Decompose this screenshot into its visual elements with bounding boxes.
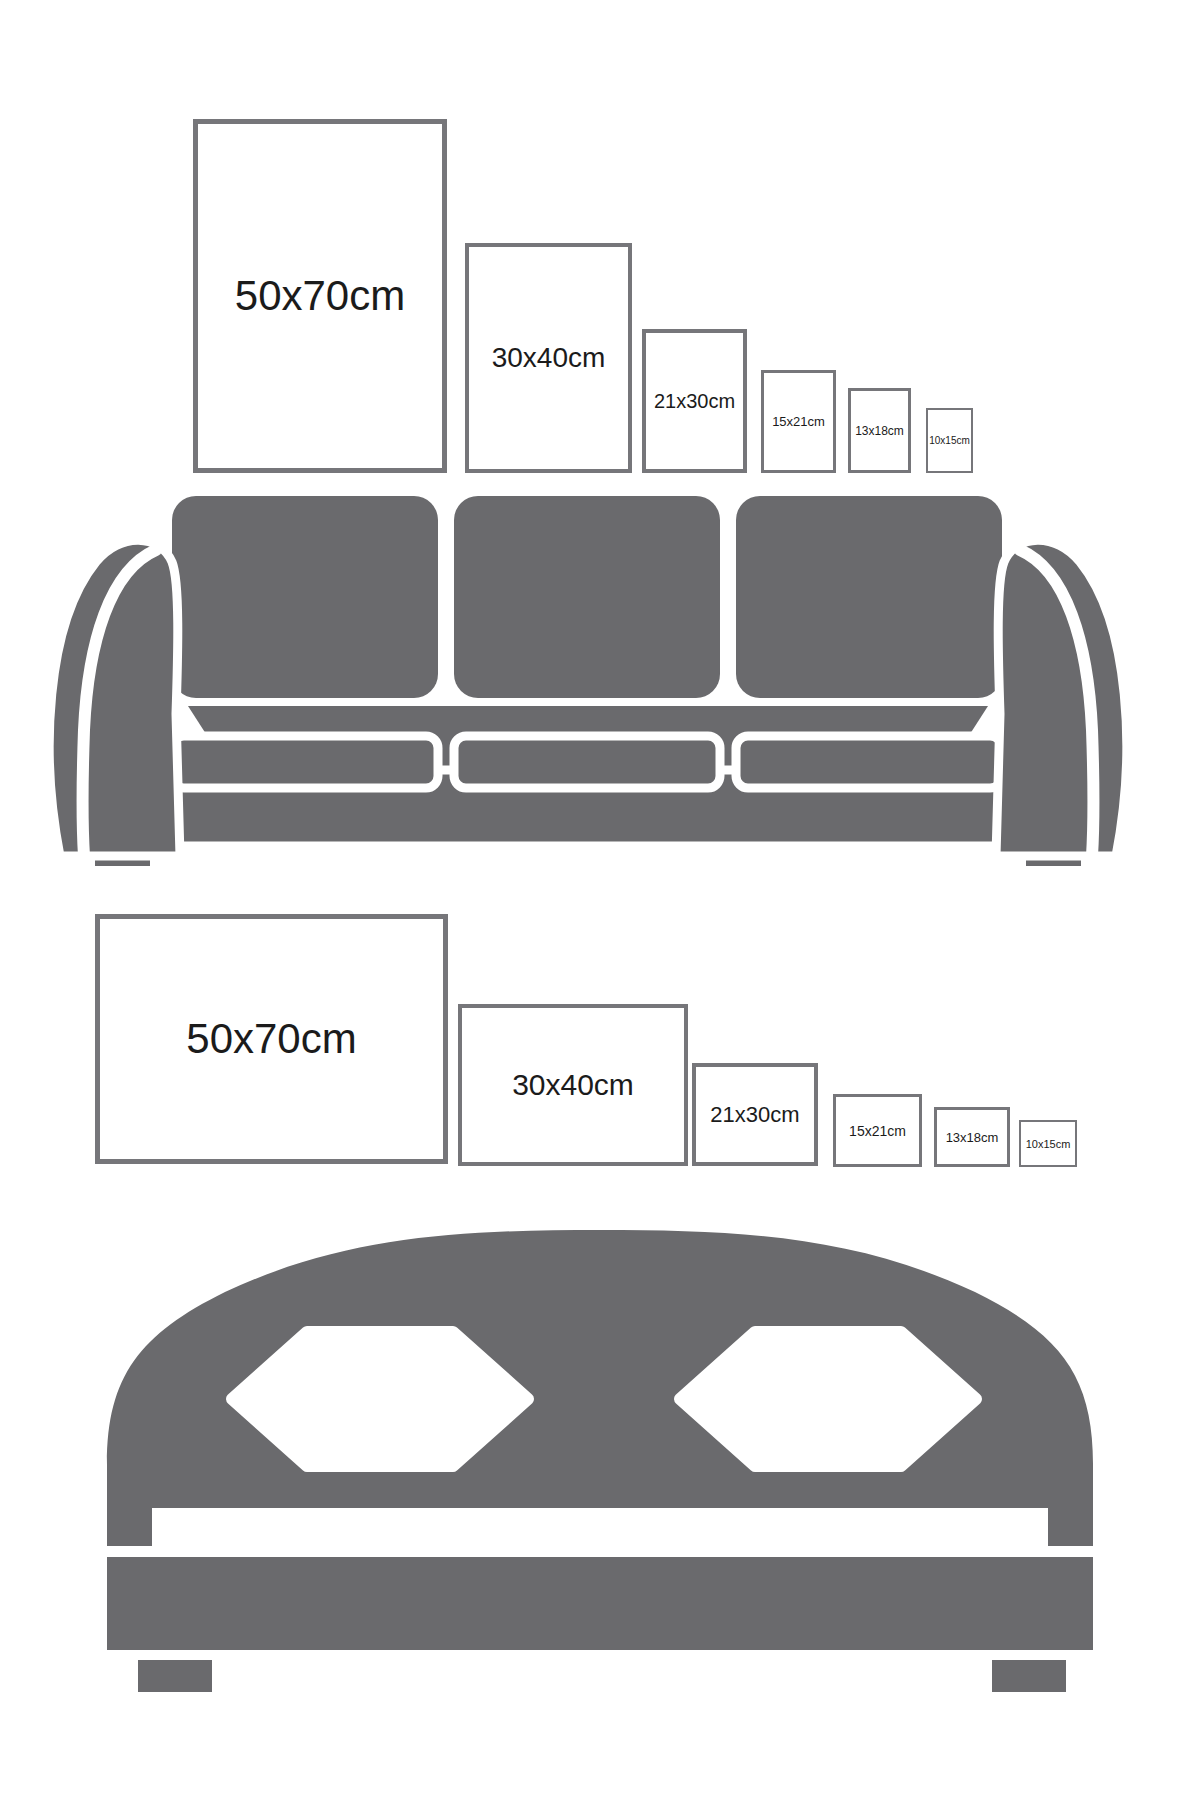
size-frame-21x30-portrait: 21x30cm bbox=[642, 329, 747, 473]
size-label: 21x30cm bbox=[710, 1102, 799, 1128]
size-frame-15x21-portrait: 15x21cm bbox=[761, 370, 836, 473]
size-label: 30x40cm bbox=[512, 1068, 634, 1102]
size-frame-13x18-landscape: 13x18cm bbox=[934, 1107, 1010, 1167]
size-frame-30x40-portrait: 30x40cm bbox=[465, 243, 632, 473]
size-label: 30x40cm bbox=[492, 342, 606, 374]
size-label: 13x18cm bbox=[855, 424, 904, 438]
size-label: 21x30cm bbox=[654, 390, 735, 413]
size-label: 15x21cm bbox=[772, 414, 825, 429]
size-label: 13x18cm bbox=[946, 1130, 999, 1145]
bed-icon bbox=[95, 1226, 1105, 1693]
size-frame-13x18-portrait: 13x18cm bbox=[848, 388, 911, 473]
sofa-icon bbox=[38, 474, 1138, 866]
size-label: 50x70cm bbox=[235, 272, 405, 320]
size-frame-50x70-landscape: 50x70cm bbox=[95, 914, 448, 1164]
size-frame-10x15-portrait: 10x15cm bbox=[926, 408, 973, 473]
size-frame-15x21-landscape: 15x21cm bbox=[833, 1094, 922, 1167]
size-frame-10x15-landscape: 10x15cm bbox=[1019, 1120, 1077, 1167]
poster-size-comparison-guide: 50x70cm 30x40cm 21x30cm 15x21cm 13x18cm … bbox=[0, 0, 1200, 1800]
size-frame-30x40-landscape: 30x40cm bbox=[458, 1004, 688, 1166]
size-frame-21x30-landscape: 21x30cm bbox=[692, 1063, 818, 1166]
size-frame-50x70-portrait: 50x70cm bbox=[193, 119, 447, 473]
size-label: 15x21cm bbox=[849, 1123, 906, 1139]
size-label: 10x15cm bbox=[929, 435, 970, 446]
size-label: 50x70cm bbox=[186, 1015, 356, 1063]
size-label: 10x15cm bbox=[1026, 1138, 1071, 1150]
